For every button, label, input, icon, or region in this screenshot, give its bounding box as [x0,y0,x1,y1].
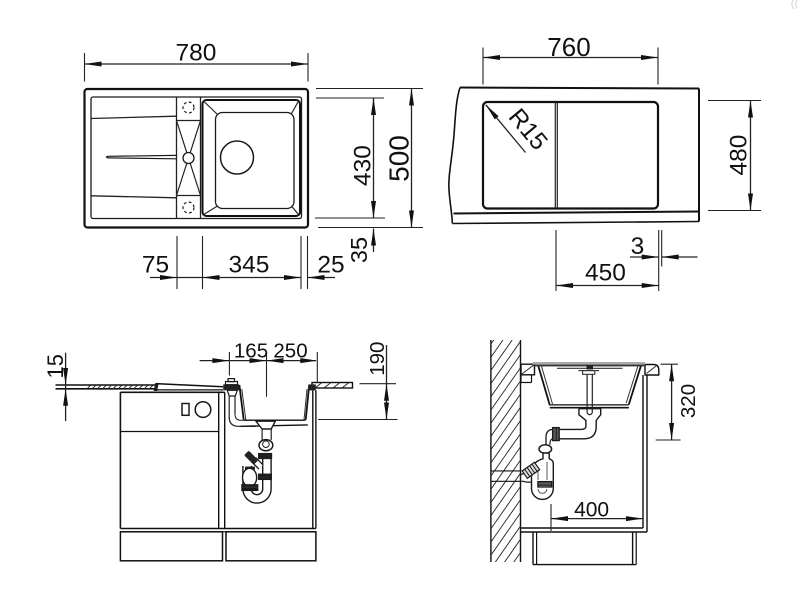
svg-text:250: 250 [273,339,307,362]
svg-text:400: 400 [574,498,609,521]
svg-text:480: 480 [726,135,753,176]
svg-text:15: 15 [43,354,68,378]
svg-text:75: 75 [142,252,169,279]
svg-text:430: 430 [350,145,377,186]
svg-text:760: 760 [547,32,590,62]
svg-text:25: 25 [317,252,344,279]
svg-text:165: 165 [234,339,268,362]
svg-text:780: 780 [176,40,217,67]
svg-text:190: 190 [366,342,389,376]
svg-text:320: 320 [677,384,700,418]
svg-text:450: 450 [585,260,626,287]
svg-text:345: 345 [229,252,270,279]
svg-text:3: 3 [631,233,645,260]
svg-text:35: 35 [346,237,372,263]
svg-text:500: 500 [384,135,415,182]
svg-text:R15: R15 [503,104,553,156]
